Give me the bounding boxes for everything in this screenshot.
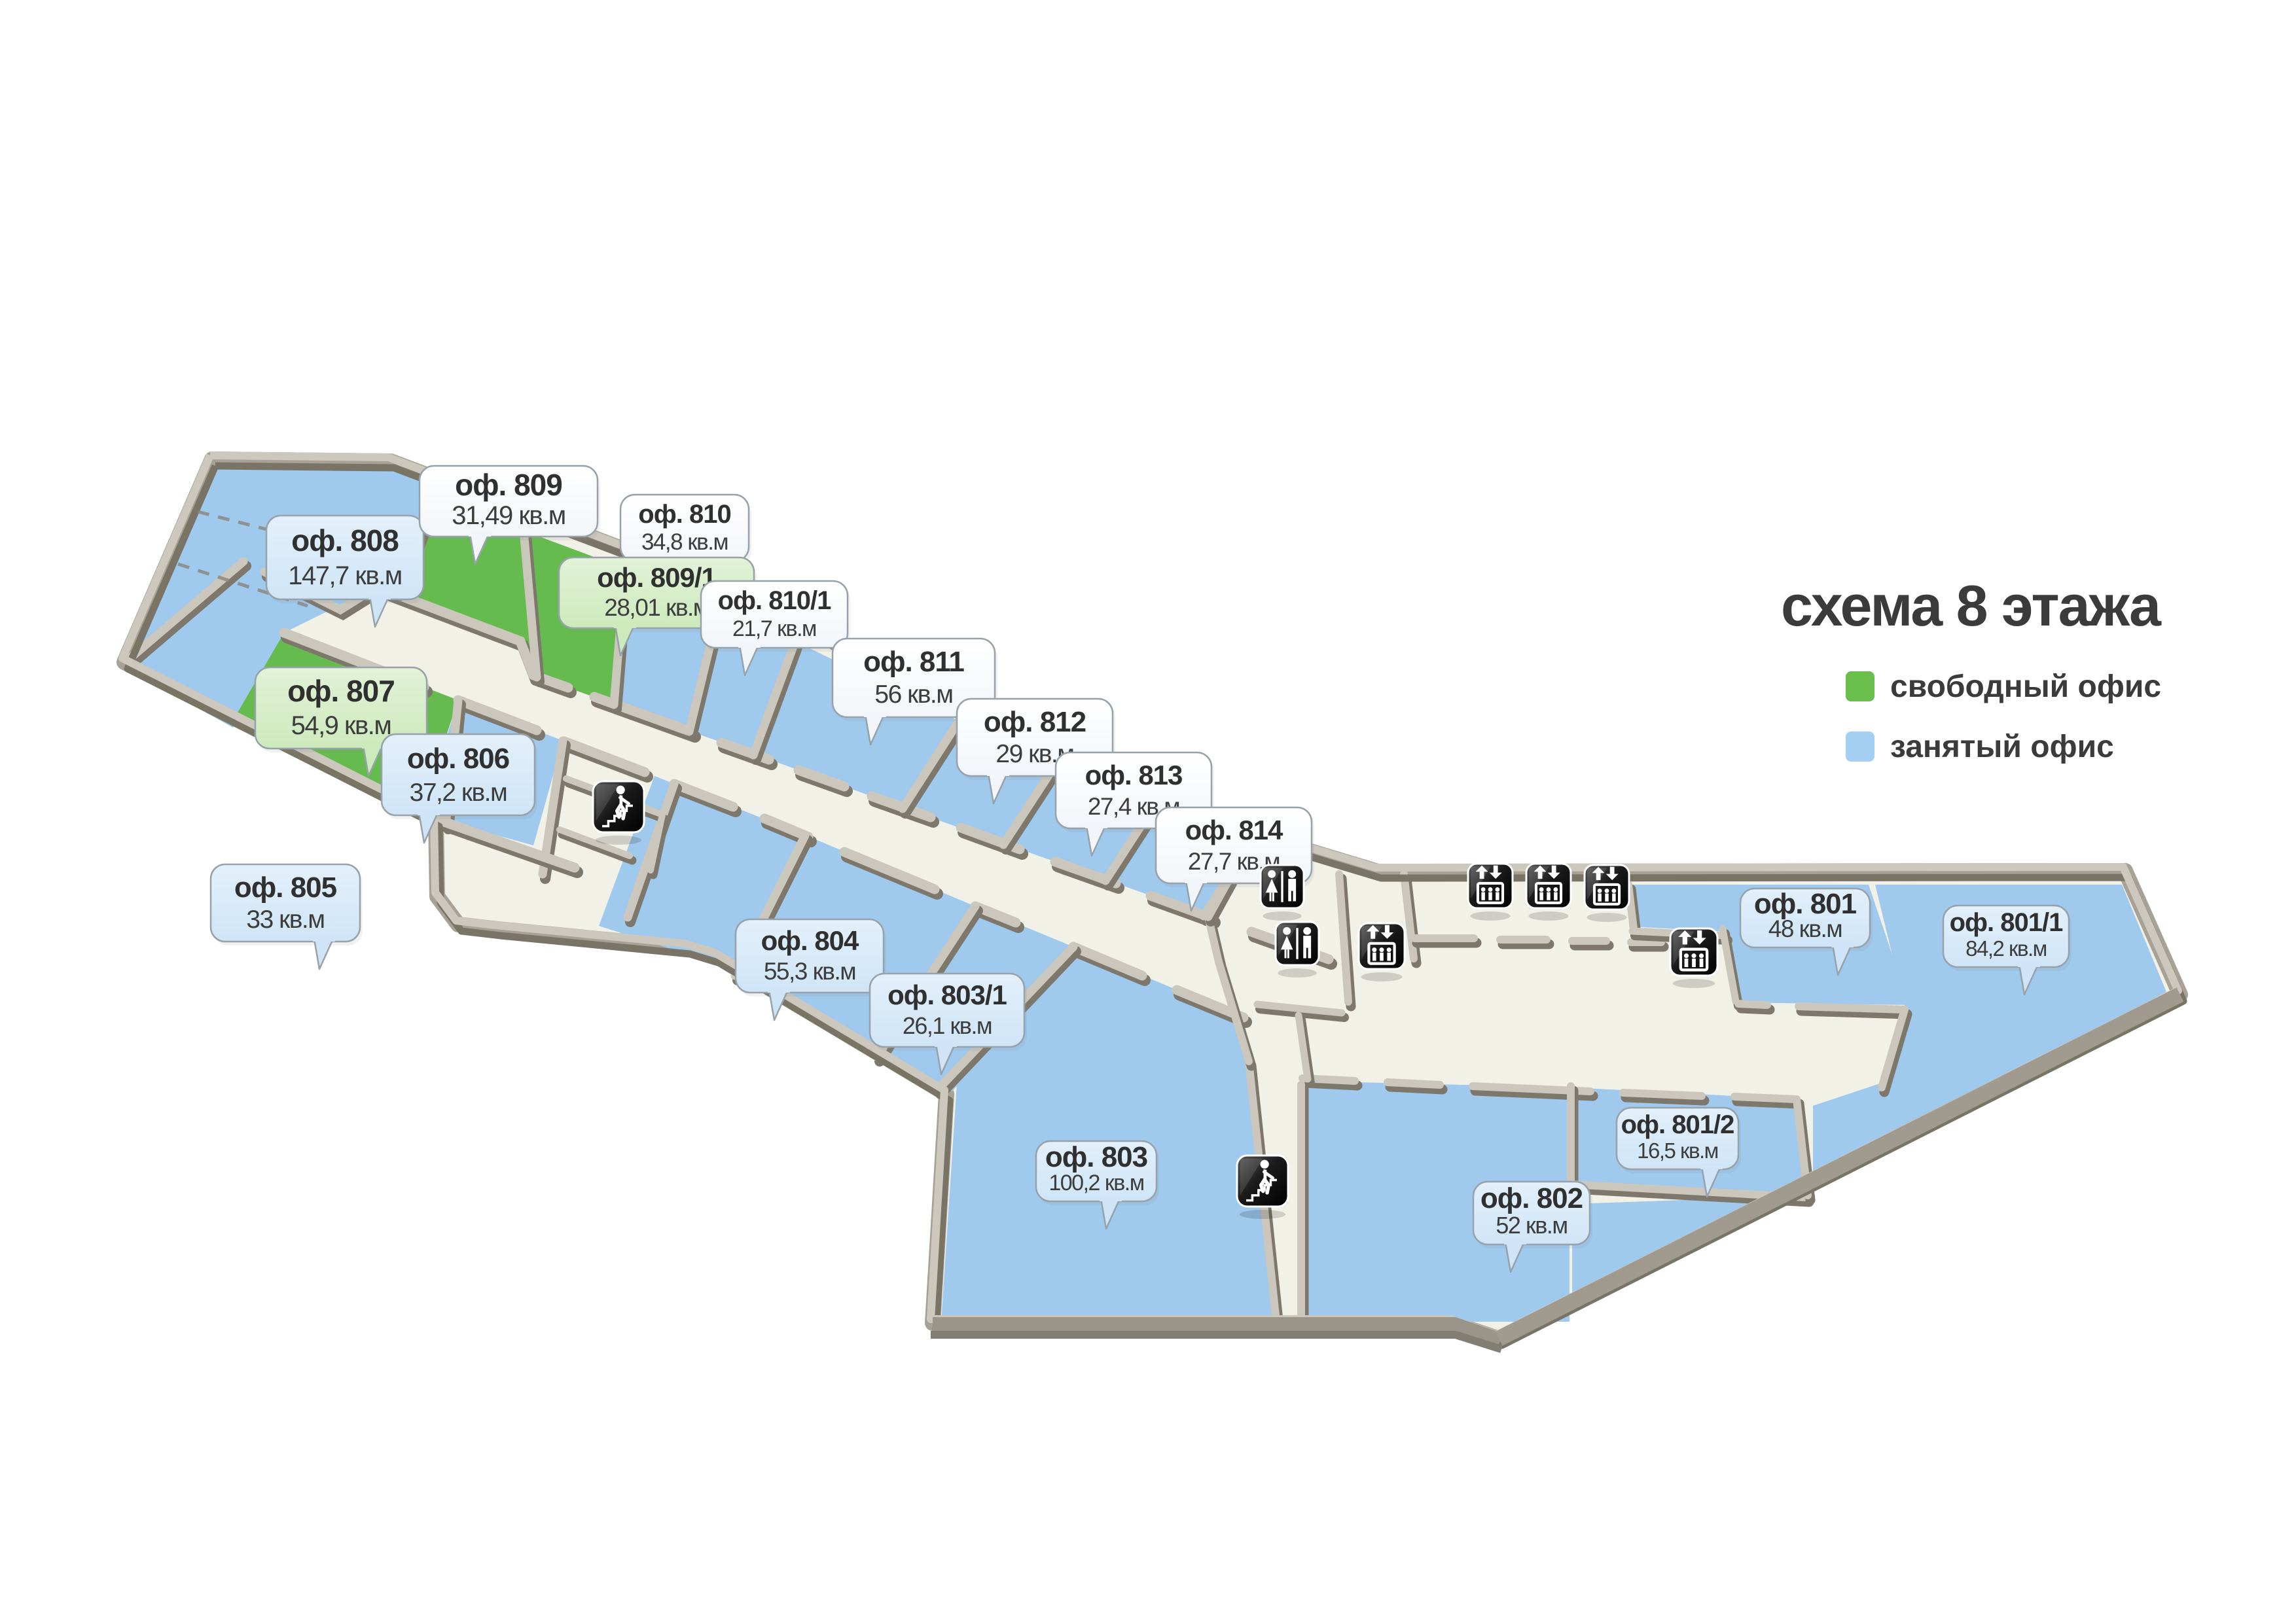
- svg-text:оф. 810/1: оф. 810/1: [718, 586, 832, 615]
- svg-text:21,7 кв.м: 21,7 кв.м: [732, 616, 816, 641]
- svg-text:оф. 814: оф. 814: [1185, 815, 1283, 845]
- svg-text:оф. 803/1: оф. 803/1: [888, 980, 1007, 1010]
- svg-text:84,2 кв.м: 84,2 кв.м: [1965, 936, 2047, 961]
- svg-text:оф. 809: оф. 809: [455, 468, 562, 502]
- svg-text:оф. 801/1: оф. 801/1: [1950, 908, 2064, 937]
- svg-text:31,49 кв.м: 31,49 кв.м: [452, 501, 565, 530]
- svg-text:оф. 809/1: оф. 809/1: [597, 562, 716, 593]
- svg-text:54,9 кв.м: 54,9 кв.м: [291, 711, 391, 740]
- svg-text:оф. 805: оф. 805: [234, 872, 337, 904]
- svg-text:оф. 802: оф. 802: [1480, 1182, 1583, 1214]
- svg-text:оф. 801/2: оф. 801/2: [1621, 1110, 1734, 1139]
- svg-text:28,01 кв.м: 28,01 кв.м: [604, 594, 708, 621]
- svg-text:оф. 807: оф. 807: [287, 674, 395, 708]
- svg-text:оф. 810: оф. 810: [638, 500, 730, 529]
- svg-text:147,7 кв.м: 147,7 кв.м: [288, 561, 402, 590]
- svg-text:48 кв.м: 48 кв.м: [1768, 915, 1842, 942]
- svg-text:оф. 803: оф. 803: [1045, 1141, 1147, 1173]
- svg-text:34,8 кв.м: 34,8 кв.м: [641, 529, 728, 555]
- svg-text:55,3 кв.м: 55,3 кв.м: [764, 958, 855, 985]
- svg-text:26,1 кв.м: 26,1 кв.м: [903, 1012, 992, 1039]
- svg-text:свободный офис: свободный офис: [1890, 669, 2161, 704]
- svg-text:оф. 811: оф. 811: [863, 646, 964, 678]
- svg-text:оф. 808: оф. 808: [291, 523, 399, 557]
- svg-text:оф. 812: оф. 812: [984, 706, 1086, 738]
- svg-text:занятый офис: занятый офис: [1890, 730, 2114, 764]
- svg-text:100,2 кв.м: 100,2 кв.м: [1049, 1171, 1143, 1195]
- svg-text:оф. 813: оф. 813: [1085, 760, 1183, 790]
- svg-text:33 кв.м: 33 кв.м: [246, 906, 324, 934]
- svg-text:оф. 804: оф. 804: [761, 925, 859, 956]
- svg-text:52 кв.м: 52 кв.м: [1496, 1212, 1567, 1239]
- svg-text:схема 8 этажа: схема 8 этажа: [1781, 573, 2162, 638]
- svg-text:оф. 806: оф. 806: [407, 743, 509, 775]
- svg-text:16,5 кв.м: 16,5 кв.м: [1637, 1139, 1718, 1163]
- svg-text:37,2 кв.м: 37,2 кв.м: [410, 779, 507, 807]
- svg-text:56 кв.м: 56 кв.м: [874, 680, 952, 709]
